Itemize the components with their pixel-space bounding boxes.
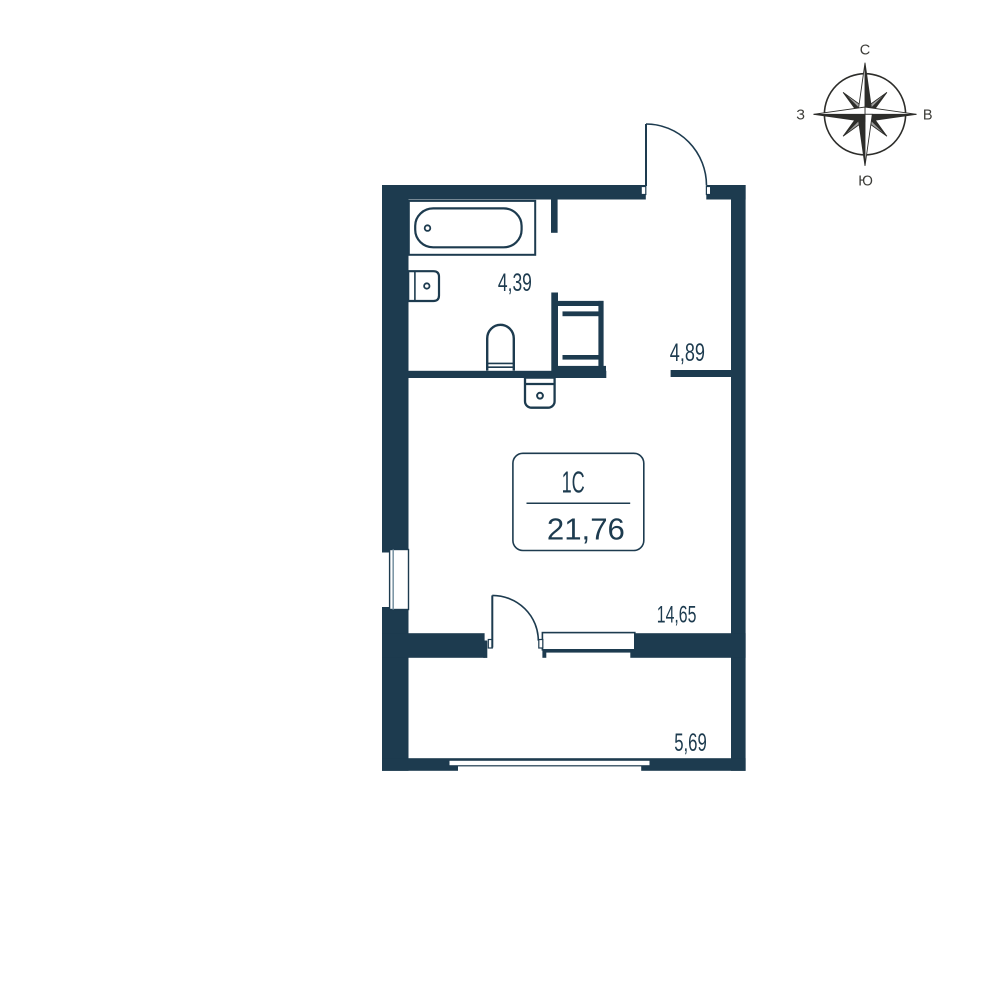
svg-text:С: С bbox=[860, 43, 870, 59]
svg-text:В: В bbox=[923, 108, 933, 124]
svg-text:4,39: 4,39 bbox=[498, 269, 532, 297]
svg-text:4,89: 4,89 bbox=[670, 339, 705, 367]
svg-text:З: З bbox=[796, 108, 805, 124]
svg-text:Ю: Ю bbox=[858, 174, 873, 190]
svg-text:5,69: 5,69 bbox=[674, 729, 707, 757]
svg-text:14,65: 14,65 bbox=[657, 602, 697, 629]
svg-text:21,76: 21,76 bbox=[547, 512, 625, 546]
svg-text:1С: 1С bbox=[562, 465, 585, 500]
